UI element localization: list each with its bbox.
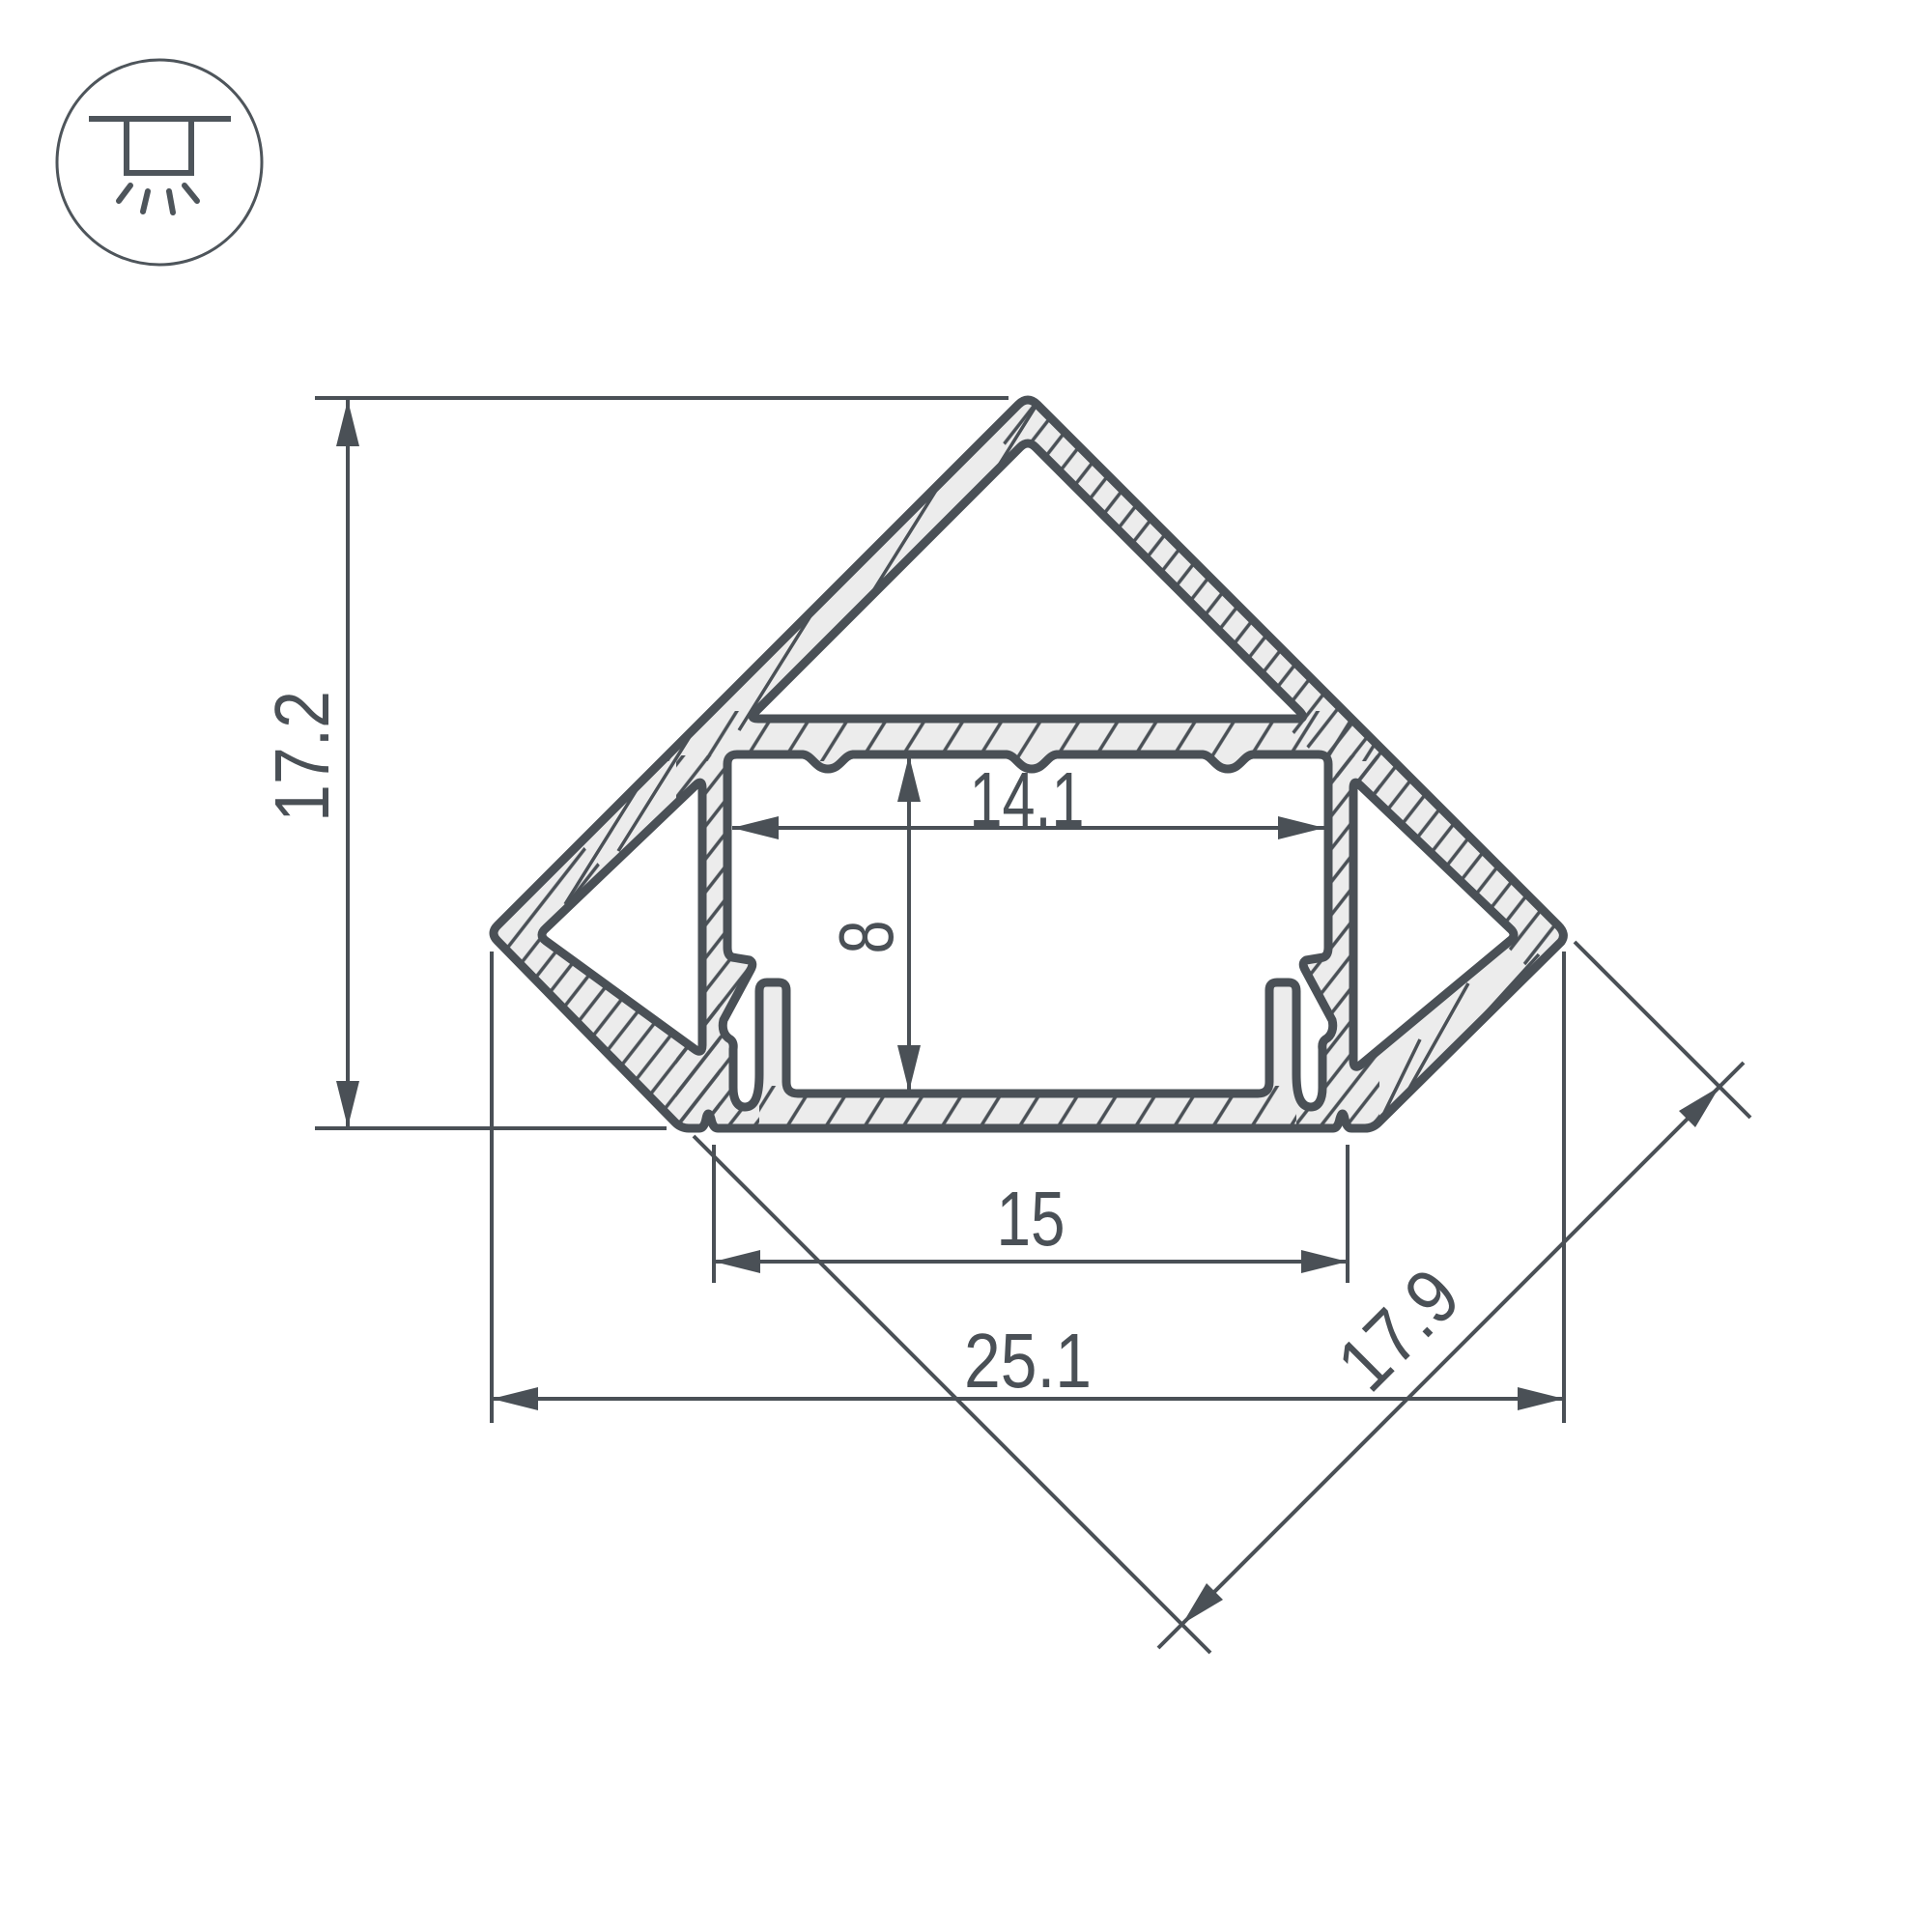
svg-text:25.1: 25.1 bbox=[964, 1318, 1092, 1404]
svg-text:14.1: 14.1 bbox=[970, 756, 1085, 842]
svg-text:8: 8 bbox=[823, 921, 909, 954]
svg-text:15: 15 bbox=[997, 1176, 1065, 1262]
svg-text:17.2: 17.2 bbox=[259, 691, 345, 822]
